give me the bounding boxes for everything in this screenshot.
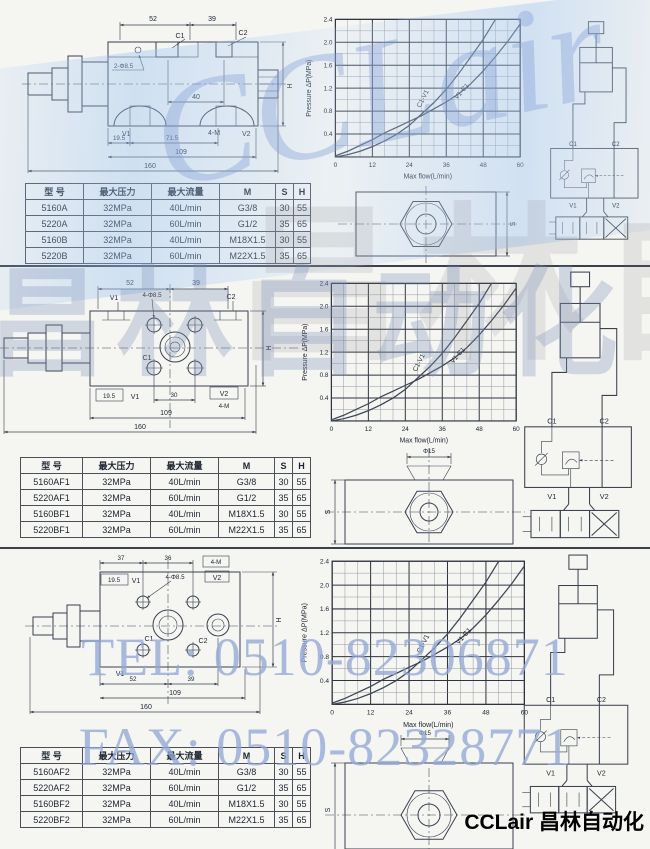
dim-label: H <box>287 83 294 88</box>
table-cell: 40L/min <box>151 796 219 812</box>
table-cell: 5220AF2 <box>21 780 83 796</box>
table-cell: 35 <box>275 490 293 506</box>
table-cell: 35 <box>275 522 293 538</box>
table-row: 5160AF132MPa40L/minG3/83055 <box>21 474 311 490</box>
dim-label: 109 <box>175 149 187 156</box>
port-label: C2 <box>227 294 236 301</box>
y-axis-label: Pressure ΔP(MPa) <box>301 603 309 663</box>
y-tick-label: 1.6 <box>324 62 333 69</box>
curve-label: V1-C1 <box>455 627 473 646</box>
column-header: M <box>219 748 275 764</box>
dim-label: 39 <box>188 676 195 683</box>
dim-label: 2-Φ8.5 <box>114 63 134 70</box>
column-header: S <box>276 184 294 200</box>
y-tick-label: 0.4 <box>320 395 329 402</box>
x-tick-label: 0 <box>330 710 334 717</box>
dim-label: 4-M <box>211 559 222 566</box>
port-label: C2 <box>239 30 248 37</box>
column-header: S <box>275 458 293 474</box>
curve-V1-C1 <box>332 566 524 703</box>
y-tick-label: 2.0 <box>320 582 330 589</box>
column-header: 最大压力 <box>84 184 152 200</box>
pilot-valve-symbol <box>562 452 579 469</box>
table-row: 5220B32MPa60L/minM22X1.53565 <box>26 248 311 264</box>
table-cell: 5220BF1 <box>21 522 83 538</box>
table-cell: 32MPa <box>84 200 152 216</box>
section3-spec-table: 型 号最大压力最大流量MSH 5160AF232MPa40L/minG3/830… <box>20 747 310 828</box>
y-tick-label: 2.0 <box>324 39 333 46</box>
dim-label: 39 <box>192 280 200 287</box>
column-header: M <box>219 458 275 474</box>
table-cell: 55 <box>293 764 311 780</box>
x-tick-label: 48 <box>476 426 484 433</box>
section1-spec-table: 型 号最大压力最大流量MSH 5160A32MPa40L/minG3/83055… <box>25 183 310 264</box>
table-row: 5220A32MPa60L/minG1/23565 <box>26 216 311 232</box>
table-cell: 5220BF2 <box>21 812 83 828</box>
y-tick-label: 2.4 <box>324 17 333 24</box>
dim-label: S <box>325 509 332 514</box>
dim-label: 19.5 <box>103 393 116 400</box>
column-header: M <box>220 184 276 200</box>
dim-label: 4-Φ8.5 <box>142 292 162 299</box>
section2-performance-chart: 012243648600.40.81.21.62.02.4Max flow(L/… <box>298 272 526 450</box>
port-label: C2 <box>597 696 606 704</box>
column-header: H <box>293 458 311 474</box>
dim-label: Φ15 <box>423 448 435 455</box>
table-cell: 40L/min <box>151 474 219 490</box>
section2-top-view-drawing: 52 39 V1 4-Φ8.5 C2 C1 19.5 V1 30 V2 4-M … <box>0 270 300 448</box>
table-cell: 5160AF1 <box>21 474 83 490</box>
spec-table: 型 号最大压力最大流量MSH 5160AF132MPa40L/minG3/830… <box>20 457 311 538</box>
section2-circuit: C1 C2 V1 V2 <box>508 266 646 550</box>
table-row: 5220BF132MPa60L/minM22X1.53565 <box>21 522 311 538</box>
x-tick-label: 48 <box>482 710 490 717</box>
y-axis-label: Pressure ΔP(MPa) <box>306 60 313 117</box>
table-cell: 30 <box>275 474 293 490</box>
table-row: 5160A32MPa40L/minG3/83055 <box>26 200 311 216</box>
y-tick-label: 2.4 <box>320 558 330 565</box>
table-cell: 5220B <box>26 248 84 264</box>
table-cell: G3/8 <box>220 200 276 216</box>
section3-circuit: C1 C2 V1 V2 <box>505 551 645 823</box>
dim-label: 160 <box>134 424 146 431</box>
table-header-row: 型 号最大压力最大流量MSH <box>21 748 311 764</box>
table-cell: G3/8 <box>219 764 275 780</box>
port-label: C1 <box>546 696 555 704</box>
column-header: 型 号 <box>26 184 84 200</box>
dim-label: 109 <box>160 410 172 417</box>
table-cell: 30 <box>275 764 293 780</box>
curve-label: C1-V1 <box>416 89 431 109</box>
table-cell: 35 <box>275 780 293 796</box>
port-label: C1 <box>176 33 185 40</box>
hydraulic-schematic: C1 C2 V1 V2 <box>505 551 645 823</box>
x-tick-label: 60 <box>517 162 525 169</box>
pilot-valve-symbol <box>561 730 577 746</box>
port-label: V2 <box>213 575 222 582</box>
port-label: C2 <box>612 142 620 148</box>
table-cell: 32MPa <box>83 812 151 828</box>
x-tick-label: 48 <box>480 162 488 169</box>
directional-valve-symbol <box>523 510 619 537</box>
x-tick-label: 12 <box>365 426 373 433</box>
table-cell: 5160BF1 <box>21 506 83 522</box>
table-cell: 5160A <box>26 200 84 216</box>
port-label: V1 <box>131 394 140 401</box>
y-tick-label: 1.6 <box>320 606 330 613</box>
port-label: V2 <box>597 769 606 777</box>
dim-label: 4-M <box>208 130 220 137</box>
table-cell: 65 <box>293 490 311 506</box>
y-tick-label: 0.8 <box>320 654 330 661</box>
section1-top-view-hex: S <box>338 186 518 264</box>
port-label: C2 <box>600 417 609 426</box>
table-cell: M18X1.5 <box>219 796 275 812</box>
section1-side-view-drawing: 52 39 C1 C2 2-Φ8.5 40 V1 4-M V2 19.5 71.… <box>20 6 310 181</box>
section2-spec-table: 型 号最大压力最大流量MSH 5160AF132MPa40L/minG3/830… <box>20 457 310 538</box>
table-cell: M18X1.5 <box>219 506 275 522</box>
table-cell: 35 <box>275 812 293 828</box>
table-cell: 60L/min <box>151 780 219 796</box>
dim-label: 37 <box>118 555 125 562</box>
port-label: V1 <box>569 203 577 209</box>
table-cell: 40L/min <box>152 200 220 216</box>
table-cell: 32MPa <box>83 780 151 796</box>
footer-brand: CCLair 昌林自动化 <box>464 806 644 836</box>
curve-label: V1-C1 <box>453 82 471 101</box>
port-label: V1 <box>546 769 555 777</box>
table-cell: 5160AF2 <box>21 764 83 780</box>
table-cell: 65 <box>293 780 311 796</box>
table-cell: 5160BF2 <box>21 796 83 812</box>
dim-label: 4-M <box>219 403 230 410</box>
dim-label: 71.5 <box>166 135 179 142</box>
table-cell: 32MPa <box>83 522 151 538</box>
table-cell: 32MPa <box>84 216 152 232</box>
column-header: S <box>275 748 293 764</box>
y-tick-label: 0.8 <box>320 372 329 379</box>
table-cell: 60L/min <box>151 522 219 538</box>
table-row: 5160BF132MPa40L/minM18X1.53055 <box>21 506 311 522</box>
table-cell: 60L/min <box>152 216 220 232</box>
fixed-load-symbol <box>588 22 603 34</box>
port-label: V2 <box>242 131 251 138</box>
section2-top-view-hex: Φ15 S <box>325 440 525 548</box>
directional-valve-symbol <box>549 217 628 239</box>
port-label: V2 <box>220 391 229 398</box>
spec-table: 型 号最大压力最大流量MSH 5160A32MPa40L/minG3/83055… <box>25 183 311 264</box>
table-cell: 32MPa <box>83 490 151 506</box>
table-cell: 30 <box>275 506 293 522</box>
port-label: V1 <box>110 295 119 302</box>
port-label: V1 <box>116 671 125 678</box>
dim-label: 36 <box>165 555 172 562</box>
table-cell: 32MPa <box>83 764 151 780</box>
column-header: 最大流量 <box>152 184 220 200</box>
table-row: 5160AF232MPa40L/minG3/83055 <box>21 764 311 780</box>
table-cell: 65 <box>293 812 311 828</box>
x-tick-label: 0 <box>330 426 334 433</box>
table-header-row: 型 号最大压力最大流量MSH <box>26 184 311 200</box>
dim-label: 39 <box>208 16 216 23</box>
table-cell: 32MPa <box>84 232 152 248</box>
table-row: 5160BF232MPa40L/minM18X1.53055 <box>21 796 311 812</box>
valve-block <box>524 705 628 764</box>
table-cell: 55 <box>293 506 311 522</box>
table-cell: 32MPa <box>83 506 151 522</box>
y-tick-label: 1.2 <box>320 349 329 356</box>
table-cell: 40L/min <box>152 232 220 248</box>
dim-label: H <box>266 345 273 350</box>
dim-label: S <box>325 807 332 812</box>
dim-label: H <box>276 617 283 622</box>
table-cell: 65 <box>294 216 311 232</box>
table-cell: G3/8 <box>219 474 275 490</box>
table-cell: 30 <box>276 200 294 216</box>
table-row: 5220AF132MPa60L/minG1/23565 <box>21 490 311 506</box>
x-tick-label: 12 <box>367 710 375 717</box>
column-header: 型 号 <box>21 748 83 764</box>
table-cell: 5160B <box>26 232 84 248</box>
dim-label: 52 <box>149 16 157 23</box>
y-tick-label: 1.6 <box>320 326 329 333</box>
x-tick-label: 24 <box>402 426 410 433</box>
pilot-valve-symbol <box>582 169 596 183</box>
dim-label: 19.5 <box>113 135 126 142</box>
y-tick-label: 2.0 <box>320 303 329 310</box>
fixed-load-symbol <box>571 272 590 287</box>
dim-label: 160 <box>140 704 152 711</box>
curve-V1-C1 <box>331 288 516 420</box>
table-cell: 32MPa <box>84 248 152 264</box>
port-label: C1 <box>143 355 152 362</box>
table-header-row: 型 号最大压力最大流量MSH <box>21 458 311 474</box>
dim-label: 52 <box>130 676 137 683</box>
table-row: 5220BF232MPa60L/minM22X1.53565 <box>21 812 311 828</box>
section1-performance-chart: 012243648600.40.81.21.62.02.4Max flow(L/… <box>302 8 530 186</box>
port-label: C1 <box>569 142 577 148</box>
dim-label: 4-Φ8.5 <box>165 574 185 581</box>
x-axis-label: Max flow(L/min) <box>404 174 452 181</box>
y-tick-label: 0.8 <box>324 108 333 115</box>
x-tick-label: 24 <box>406 162 414 169</box>
curve-V1-C1 <box>335 24 520 156</box>
dim-label: Φ15 <box>419 730 431 737</box>
x-tick-label: 36 <box>443 162 451 169</box>
table-cell: M22X1.5 <box>219 522 275 538</box>
table-cell: 55 <box>293 796 311 812</box>
table-row: 5160B32MPa40L/minM18X1.53055 <box>26 232 311 248</box>
x-tick-label: 36 <box>439 426 447 433</box>
port-label: C1 <box>547 417 556 426</box>
x-tick-label: 12 <box>369 162 377 169</box>
x-tick-label: 24 <box>405 710 413 717</box>
datasheet-page: 52 39 C1 C2 2-Φ8.5 40 V1 4-M V2 19.5 71.… <box>0 0 650 849</box>
port-label: C1 <box>145 636 154 643</box>
table-cell: 32MPa <box>83 474 151 490</box>
table-cell: 35 <box>276 248 294 264</box>
table-cell: G1/2 <box>220 216 276 232</box>
y-tick-label: 1.2 <box>320 630 330 637</box>
table-cell: 55 <box>294 232 311 248</box>
fixed-load-symbol <box>569 555 587 569</box>
table-cell: 30 <box>275 796 293 812</box>
port-label: V2 <box>600 492 609 501</box>
dim-label: S <box>510 221 517 226</box>
table-cell: G1/2 <box>219 490 275 506</box>
table-cell: 30 <box>276 232 294 248</box>
dim-label: 160 <box>144 163 156 170</box>
section-divider <box>0 547 650 549</box>
column-header: H <box>294 184 311 200</box>
dim-label: 52 <box>126 280 134 287</box>
table-cell: 60L/min <box>152 248 220 264</box>
x-tick-label: 36 <box>444 710 452 717</box>
section1-circuit: C1 C2 V1 V2 <box>537 10 650 256</box>
table-cell: 55 <box>294 200 311 216</box>
table-cell: 5220AF1 <box>21 490 83 506</box>
valve-block <box>551 148 638 198</box>
y-tick-label: 2.4 <box>320 281 329 288</box>
dim-label: 30 <box>171 392 178 399</box>
table-cell: 35 <box>276 216 294 232</box>
port-label: V2 <box>612 203 620 209</box>
valve-block <box>525 427 632 488</box>
table-cell: 40L/min <box>151 764 219 780</box>
curve-label: V1-C1 <box>449 346 467 365</box>
x-tick-label: 0 <box>334 162 338 169</box>
y-tick-label: 0.4 <box>324 131 333 138</box>
dim-label: 19.5 <box>108 577 121 584</box>
section3-performance-chart: 012243648600.40.81.21.62.02.4Max flow(L/… <box>296 551 536 733</box>
y-tick-label: 1.2 <box>324 85 333 92</box>
table-cell: M22X1.5 <box>220 248 276 264</box>
table-cell: 60L/min <box>151 812 219 828</box>
port-label: C2 <box>199 638 208 645</box>
port-label: V1 <box>132 578 141 585</box>
table-cell: 65 <box>293 522 311 538</box>
table-cell: 55 <box>293 474 311 490</box>
curve-label: C1-V1 <box>416 634 431 655</box>
dim-label: 40 <box>192 94 200 101</box>
column-header: 型 号 <box>21 458 83 474</box>
curve-label: C1-V1 <box>412 353 427 373</box>
column-header: H <box>293 748 311 764</box>
dim-label: 109 <box>169 690 181 697</box>
spec-table: 型 号最大压力最大流量MSH 5160AF232MPa40L/minG3/830… <box>20 747 311 828</box>
table-cell: 60L/min <box>151 490 219 506</box>
table-row: 5220AF232MPa60L/minG1/23565 <box>21 780 311 796</box>
column-header: 最大压力 <box>83 748 151 764</box>
y-axis-label: Pressure ΔP(MPa) <box>302 324 309 381</box>
table-cell: 5220A <box>26 216 84 232</box>
table-cell: 32MPa <box>83 796 151 812</box>
table-cell: M18X1.5 <box>220 232 276 248</box>
column-header: 最大压力 <box>83 458 151 474</box>
section3-top-view-drawing: 37 36 4-M 19.5 V1 4-Φ8.5 V2 C1 C2 V1 52 … <box>25 552 315 748</box>
y-tick-label: 0.4 <box>320 678 330 685</box>
column-header: 最大流量 <box>151 748 219 764</box>
hydraulic-schematic: C1 C2 V1 V2 <box>508 266 646 550</box>
column-header: 最大流量 <box>151 458 219 474</box>
table-cell: 65 <box>294 248 311 264</box>
table-cell: G1/2 <box>219 780 275 796</box>
table-cell: 40L/min <box>151 506 219 522</box>
table-cell: M22X1.5 <box>219 812 275 828</box>
port-label: V1 <box>547 492 556 501</box>
hydraulic-schematic: C1 C2 V1 V2 <box>537 10 650 256</box>
